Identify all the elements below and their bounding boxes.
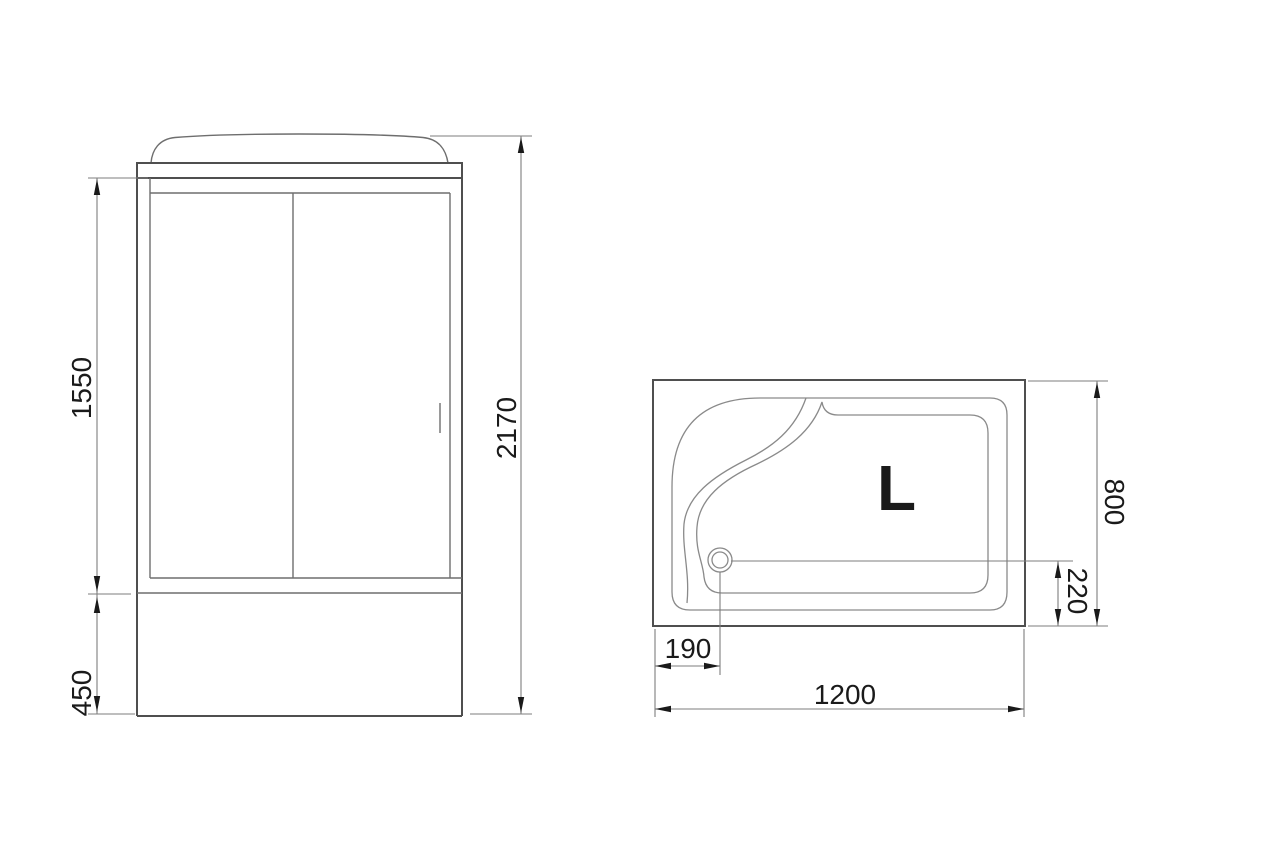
arrow-up-icon — [1094, 382, 1100, 398]
canopy-dome-outline — [151, 134, 448, 163]
front-elevation-view — [137, 134, 462, 716]
arrow-down-icon — [94, 576, 100, 592]
seat-contour — [684, 398, 806, 603]
dim-label-glass-height: 1550 — [66, 357, 97, 419]
dim-label-drain-offset-left: 190 — [665, 633, 712, 664]
dim-label-width: 1200 — [814, 679, 876, 710]
arrow-right-icon — [1008, 706, 1024, 712]
orientation-label: L — [877, 452, 916, 524]
plan-right-dimensions: 800 220 — [1028, 381, 1130, 626]
front-left-dimensions: 1550 450 — [66, 178, 148, 716]
tray-rim — [672, 398, 1007, 610]
technical-drawing-canvas: 1550 450 2170 L 800 — [0, 0, 1280, 853]
head-rail — [137, 163, 462, 178]
drain-inner-circle — [712, 552, 728, 568]
shower-cabin-drawing: 1550 450 2170 L 800 — [0, 0, 1280, 853]
plan-view: L — [653, 380, 1073, 675]
dim-label-depth: 800 — [1099, 479, 1130, 526]
arrow-up-icon — [94, 597, 100, 613]
arrow-up-icon — [518, 137, 524, 153]
arrow-down-icon — [518, 697, 524, 713]
dim-label-total-height: 2170 — [491, 397, 522, 459]
dim-label-base-height: 450 — [66, 670, 97, 717]
front-right-dimension: 2170 — [430, 136, 532, 714]
arrow-up-icon — [94, 179, 100, 195]
basin-floor — [697, 402, 988, 593]
arrow-down-icon — [1055, 609, 1061, 625]
arrow-down-icon — [1094, 609, 1100, 625]
dim-label-drain-offset-bottom: 220 — [1062, 568, 1093, 615]
arrow-left-icon — [655, 706, 671, 712]
arrow-up-icon — [1055, 562, 1061, 578]
plan-bottom-dimensions: 190 1200 — [655, 629, 1024, 717]
